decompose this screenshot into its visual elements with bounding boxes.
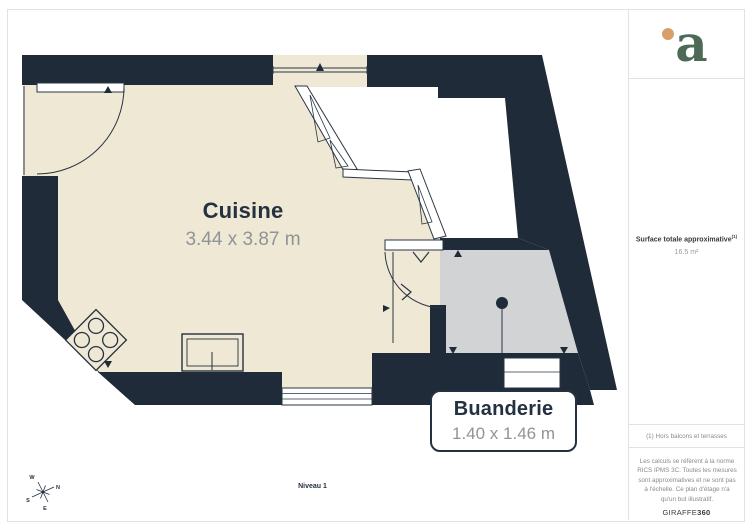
- surface-label: Surface totale approximative(1): [629, 234, 744, 243]
- agency-logo: a: [665, 19, 707, 69]
- footnote-text: (1) Hors balcons et terrasses: [646, 433, 727, 440]
- logo-dot-icon: [662, 28, 674, 40]
- room-label-buanderie: Buanderie 1.40 x 1.46 m: [430, 390, 577, 452]
- info-sidebar: a Surface totale approximative(1) 16.5 m…: [628, 9, 744, 520]
- disclaimer-text: Les calculs se réfèrent à la norme RICS …: [636, 457, 738, 504]
- footnote-section: (1) Hors balcons et terrasses: [629, 424, 744, 448]
- window-bottom-icon: [282, 388, 372, 405]
- surface-footnote-marker: (1): [732, 234, 738, 239]
- room-name: Buanderie: [432, 398, 575, 421]
- compass-labels: W N S E: [26, 475, 60, 512]
- compass-icon: [32, 482, 54, 502]
- room-dimensions: 3.44 x 3.87 m: [150, 229, 336, 251]
- wall-left: [22, 176, 58, 300]
- wall-top-left: [22, 55, 273, 85]
- sink-icon: [182, 334, 243, 371]
- compass-label-n: N: [56, 485, 60, 491]
- window-laundry-icon: [504, 358, 560, 388]
- compass-label-e: E: [43, 506, 47, 512]
- room-name: Cuisine: [150, 198, 336, 224]
- room-dimensions: 1.40 x 1.46 m: [432, 424, 575, 444]
- wall-stub: [430, 305, 446, 355]
- room-label-cuisine: Cuisine 3.44 x 3.87 m: [150, 198, 336, 251]
- compass-label-w: W: [29, 475, 35, 481]
- brand-name: GIRAFFE: [662, 508, 697, 517]
- wall-top-right: [367, 55, 505, 87]
- wall-top-step: [438, 87, 505, 98]
- brand-logo: GIRAFFE360: [629, 508, 744, 517]
- surface-block: Surface totale approximative(1) 16.5 m²: [629, 234, 744, 256]
- brand-suffix: 360: [697, 508, 710, 517]
- logo-letter: a: [675, 14, 707, 73]
- floor-plan-page: W N S E Cuisine 3.44 x 3.87 m Buanderie …: [0, 0, 750, 530]
- surface-label-text: Surface totale approximative: [636, 236, 732, 243]
- surface-value: 16.5 m²: [629, 249, 744, 256]
- compass-label-s: S: [26, 498, 30, 504]
- level-label: Niveau 1: [270, 483, 355, 490]
- logo-section: a: [629, 9, 744, 79]
